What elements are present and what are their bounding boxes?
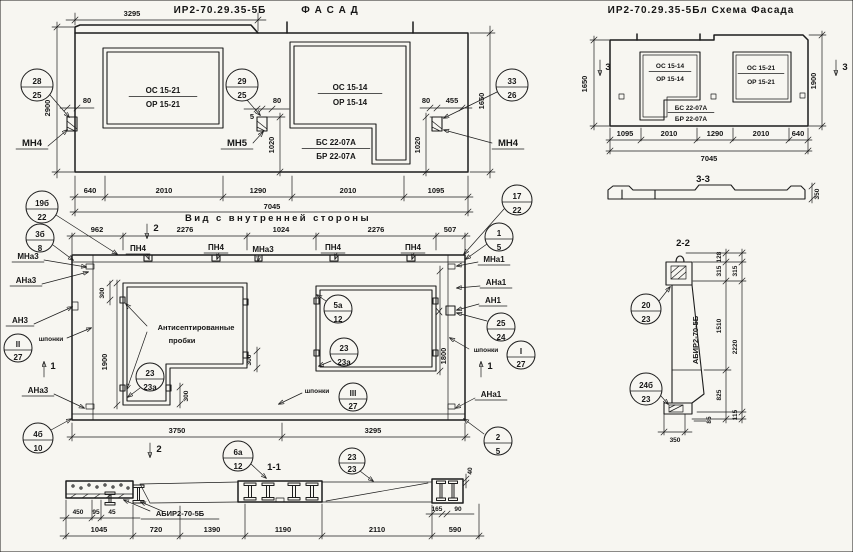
dim-2900: 2900 [43,22,74,178]
callout-num: 23 [340,344,349,353]
callout-num: 20 [642,301,651,310]
dim-text: 1024 [273,225,291,234]
interior-outline [72,255,465,420]
dim-text: 40 [467,467,474,475]
interior-title: Вид с внутренней стороны [185,213,371,224]
lifting-loop [676,256,684,262]
dim-text: 1045 [91,525,108,534]
fitting-label: МНа3 [252,245,274,254]
balcony-mark: БС 22-07А [316,138,356,147]
dim-300-b: 300 [246,347,260,372]
dim-80-left: 80 [60,96,94,111]
facade-window-right: ОС 15-14 ОР 15-14 БС 22-07А БР 22-07А [290,42,410,164]
callout-1-5: 1 5 [466,223,513,259]
panel-drawing: ИР2-70.29.35-5Б Ф А С А Д ОС 15-21 ОР 15… [0,0,853,552]
dim-text: 80 [83,96,91,105]
dim-text: 3295 [124,9,141,18]
callout-num: 29 [238,77,247,86]
callout-num: 22 [513,206,522,215]
slab-break-left [140,482,238,503]
label-pn4-3: ПН4 [321,243,345,259]
callout-num: 24б [639,381,653,390]
dim-text: 3295 [365,426,382,435]
fitting-label: шпонки [39,336,64,343]
mount-right-mark [436,306,455,315]
callout-num: 6а [234,448,243,457]
section-number: 2 [156,444,161,455]
callout-num: 33 [508,77,517,86]
mount-anchor-right [432,117,442,131]
section-number: 1 [50,361,56,372]
callout-num: 17 [513,192,522,201]
dim-text: 1095 [428,186,445,195]
fitting-label: АНа1 [486,278,507,287]
dim-text: 2110 [369,525,385,534]
scheme-balcony-mark: БС 22-07А БР 22-07А [668,105,714,123]
section-1-1-dims: 450 95 45 165 90 1045 720 1390 1190 2110… [60,467,484,539]
callout-num: III [350,389,357,398]
scheme-bottom-dims: 1095 2010 1290 2010 640 7045 [606,128,812,163]
callout-33-26: 33 26 [444,69,528,118]
foot-insert-hatch [669,405,683,412]
balcony-mark: БС 22-07А [675,105,708,112]
interior-inner-lines [72,255,465,420]
dim-text: 640 [792,129,805,138]
callout-num: 23 [642,315,651,324]
dim-1020-mid: 1020 [266,113,285,176]
scheme-dim-1650: 1650 [580,36,609,130]
fitting-label: АНа1 [481,390,502,399]
section-2-2-head [666,262,692,285]
dim-text: 80 [273,96,281,105]
dim-text: 45 [108,509,116,516]
facade-title: ИР2-70.29.35-5Б [174,5,267,16]
facade-lifting-ticks [287,22,413,33]
dim-text: 1290 [707,129,724,138]
fitting-label: АНа3 [16,276,37,285]
dim-text: 315 [732,265,739,276]
window-mark: ОР 15-14 [656,76,684,83]
callout-6a-12: 6а 12 [223,441,266,478]
dim-text: 115 [732,409,739,420]
callout-num: 27 [349,402,358,411]
dim-text: 2010 [340,186,357,195]
fitting-label: ПН4 [130,244,147,253]
section-2-2: 2-2 АБИР2-70-5Б 20 23 24б 23 128 315 315… [630,238,746,444]
dim-text: 1390 [204,525,221,534]
dim-text: 350 [670,437,681,444]
dim-text: 3750 [169,426,186,435]
mount-label: МН4 [22,138,43,149]
callout-4b-10: 4б 10 [23,419,71,453]
dim-text: 825 [716,389,723,400]
label-shponki-mid: шпонки III 27 [279,383,367,411]
label-ana3-left-lower: АНа3 [22,386,84,408]
dim-text: 450 [73,509,84,516]
dim-text: 5 [250,112,254,121]
callout-num: 19б [35,199,49,208]
i-beam [306,483,318,500]
dim-text: 128 [716,251,723,262]
section-number: 3 [842,62,847,73]
callout-num: 27 [517,360,526,369]
callout-num: 10 [34,444,43,453]
dim-text: 962 [91,225,104,234]
mount-anchor-mid [257,117,267,131]
section-mark-1-left: 1 [44,361,56,377]
callout-num: 25 [238,91,247,100]
dim-text: 1190 [275,525,291,534]
callout-num: 8 [38,244,43,253]
member-label: АБИР2-70-5Б [691,315,700,364]
dim-text: 85 [706,416,713,424]
label-ana1-right-lower: АНа1 [456,390,507,408]
label-ana3-left: АНа3 [10,272,88,286]
facade-view: ИР2-70.29.35-5Б Ф А С А Д ОС 15-21 ОР 15… [16,5,528,216]
callout-num: I [520,347,522,356]
plugs-note: Антисептированные [158,323,235,332]
dim-text: 80 [422,96,430,105]
callout-23-23a-right: 23 23а [319,338,358,367]
section-title: 3-3 [696,174,710,185]
rebar-dots [72,484,129,489]
slab-break-right [322,482,432,502]
label-mn4-right: МН4 [444,130,524,149]
window-mark: ОС 15-14 [656,63,685,70]
callout-num: 23а [143,383,157,392]
callout-24b-23: 24б 23 [630,373,668,405]
dim-text: 90 [454,506,462,513]
mount-label: МН4 [498,138,519,149]
fitting-label: ПН4 [325,243,342,252]
callout-num: 1 [497,229,502,238]
scheme-lifting-ticks [637,34,700,40]
callout-num: 25 [497,319,506,328]
dim-text: 1020 [267,137,276,154]
balcony-mark: БР 22-07А [316,152,356,161]
facade-parapet [75,25,258,33]
fitting-label: шпонки [474,347,499,354]
i-beam [437,481,446,501]
facade-window-left: ОС 15-21 ОР 15-21 [103,48,223,128]
facade-bottom-dims: 640 2010 1290 2010 1095 7045 [70,176,473,216]
section-1-1-profile [66,479,463,505]
dim-text: 7045 [264,202,281,211]
dim-text: 590 [449,525,462,534]
dim-text: 2220 [732,339,739,354]
dim-text: 1095 [617,129,634,138]
scheme-dim-1900: 1900 [809,31,826,130]
section-mark-1-right: 1 [481,361,493,377]
fitting-label: МНа1 [483,255,505,264]
i-beam [288,483,300,500]
callout-num: 23 [348,453,357,462]
callout-num: 23 [146,369,155,378]
callout-num: 5 [497,243,502,252]
section-title: 2-2 [676,238,690,249]
callout-num: 4б [33,430,42,439]
dim-350: 350 [809,183,821,203]
top-notches [144,255,415,261]
callout-num: 27 [14,353,23,362]
label-shponki-left: шпонки II 27 [4,328,91,362]
section-number: 1 [487,361,493,372]
fitting-label: АН1 [485,296,502,305]
drawing-sheet: ИР2-70.29.35-5Б Ф А С А Д ОС 15-21 ОР 15… [0,0,853,552]
interior-view: Вид с внутренней стороны Антисептированн… [4,185,535,478]
window-mark: ОС 15-21 [747,65,776,72]
section-title: 1-1 [267,462,281,473]
dim-300-c: 300 [177,383,190,408]
callout-num: 12 [334,315,343,324]
scheme-title: ИР2-70.29.35-5Бл Схема Фасада [608,5,795,16]
section-mark-2-bottom: 2 [150,443,162,457]
window-mark: ОР 15-14 [333,98,368,107]
callout-num: 3б [35,230,44,239]
callout-num: 12 [234,462,243,471]
window-mark: ОС 15-14 [333,83,368,92]
callout-23-23: 23 23 [339,448,373,481]
callout-num: 5 [496,447,501,456]
dim-text: 1290 [250,186,267,195]
dim-text: 2010 [753,129,770,138]
callout-23-23a-left: 23 23а [128,363,164,397]
section-1-1: 1-1 23 23 АБИР2-70-5Б 450 95 45 165 90 1… [60,448,484,539]
plugs-note: пробки [169,336,196,345]
callout-20-23: 20 23 [631,287,670,324]
callout-num: 24 [497,333,506,342]
dim-text: 1800 [439,348,448,365]
fitting-label: АНа3 [28,386,49,395]
head-insert-hatch [671,266,686,279]
facade-title-word: Ф А С А Д [301,5,358,16]
dim-text: 720 [150,525,163,534]
dim-text: 2900 [43,100,52,117]
dim-text: 350 [814,188,821,199]
dim-1800: 1800 [437,266,448,375]
label-mn4-left: МН4 [16,130,67,149]
dim-text: 95 [92,509,100,516]
i-beam [244,483,256,500]
dim-text: 7045 [701,154,718,163]
fitting-label: МНа3 [17,252,39,261]
scheme-window-right: ОС 15-21 ОР 15-21 [733,52,791,102]
dim-text: 2010 [661,129,678,138]
callout-num: 23 [348,465,357,474]
section-mark-3-left: 3 [600,60,611,75]
dim-text: 1900 [809,73,818,90]
callout-num: 22 [38,213,47,222]
dim-text: 1020 [413,137,422,154]
section-3-3: 3-3 350 [608,174,821,203]
scheme-mount-squares [619,93,805,99]
callout-5a-12: 5а 12 [317,295,352,324]
i-beam [449,481,458,501]
dim-text: 2276 [177,225,194,234]
section-mark-3-right: 3 [836,60,848,75]
fitting-label: АН3 [12,316,29,325]
mount-label: МН5 [227,138,248,149]
i-beam [262,483,274,500]
label-pn4-4: ПН4 [401,243,425,259]
dim-1020-right: 1020 [413,113,446,176]
dim-text: 300 [183,390,190,401]
interior-bottom-dims: 3750 3295 [67,423,470,441]
fitting-label: ПН4 [208,243,225,252]
dim-80-455-right: 80 455 [420,96,472,111]
dim-text: 1510 [716,318,723,333]
scheme-view: ИР2-70.29.35-5Бл Схема Фасада ОС 15-14 О… [580,5,848,163]
dim-text: 315 [716,265,723,276]
balcony-mark: БР 22-07А [675,116,707,123]
callout-num: 23а [337,358,351,367]
section-3-3-profile [608,185,805,199]
dim-text: 2276 [368,225,385,234]
i-beam [133,485,144,503]
callout-num: 26 [508,91,517,100]
callout-num: 28 [33,77,42,86]
label-mn5-mid: МН5 [221,132,263,149]
interior-window-right [314,286,438,371]
dim-text: 300 [246,354,253,365]
paper [0,0,853,552]
dim-text: 1900 [100,354,109,371]
dim-text: 507 [444,225,457,234]
dim-300-a: 300 [99,280,113,305]
dim-text: 165 [432,506,443,513]
callout-num: II [16,340,20,349]
label-mna3-top: МНа3 [247,245,279,261]
callout-2-5: 2 5 [464,419,512,456]
section-number: 2 [153,223,158,234]
callout-num: 25 [33,91,42,100]
callout-num: 5а [334,301,343,310]
fitting-label: шпонки [305,388,330,395]
window-mark: ОС 15-21 [146,86,181,95]
dim-text: 455 [446,96,459,105]
dim-text: 1650 [580,76,589,93]
label-an3-left: АН3 [6,307,72,326]
dim-text: 2010 [156,186,173,195]
dim-1650: 1650 [470,26,495,178]
label-pn4-2: ПН4 [204,243,228,259]
callout-num: 2 [496,433,501,442]
callout-num: 23 [642,395,651,404]
label-pn4-1: ПН4 [126,244,150,259]
fitting-label: ПН4 [405,243,422,252]
section-number: 3 [605,62,610,73]
callout-29-25: 29 25 [226,69,260,115]
dim-text: 640 [84,186,97,195]
window-mark: ОР 15-21 [146,100,181,109]
window-mark: ОР 15-21 [747,79,775,86]
dim-text: 300 [99,287,106,298]
